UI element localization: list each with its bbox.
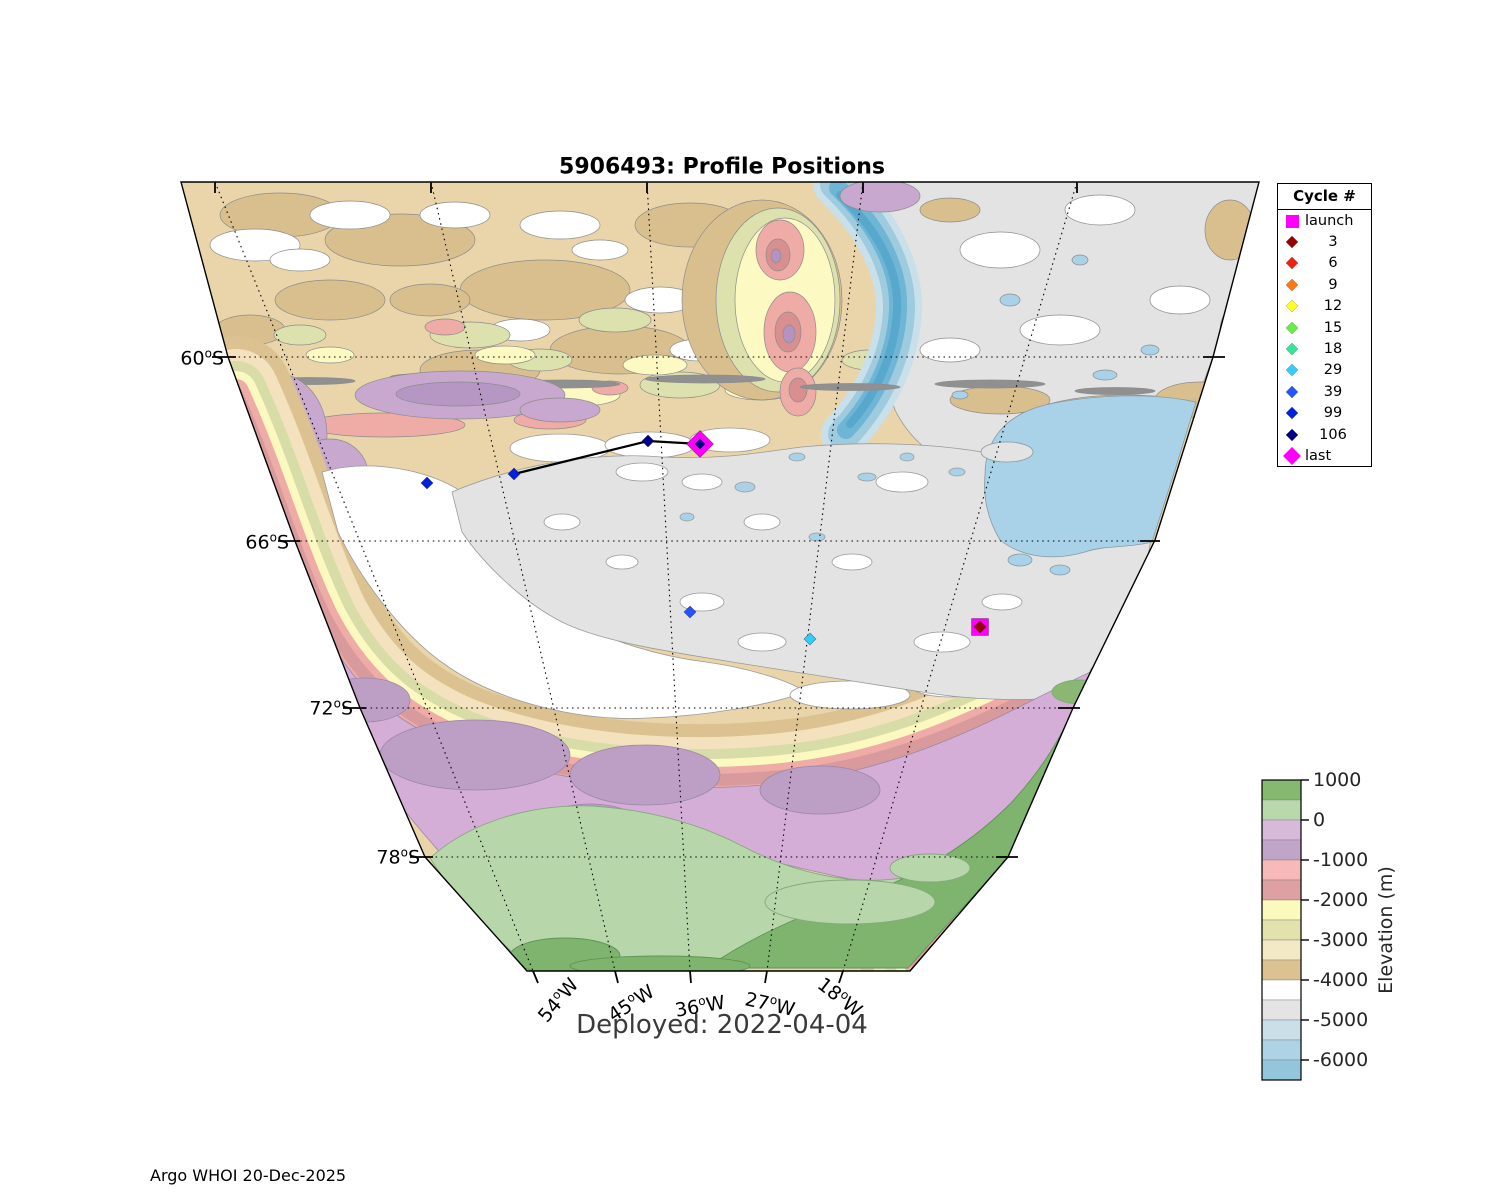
bathymetry-map — [170, 175, 1270, 985]
legend-entry-99: 99 — [1278, 403, 1371, 424]
legend-entry-6: 6 — [1278, 253, 1371, 274]
legend-entry-launch: launch — [1278, 210, 1371, 231]
legend-entry-29: 29 — [1278, 360, 1371, 381]
cycle-106-diamond-icon — [1278, 425, 1305, 445]
figure-canvas: 5906493: Profile Positions Deployed: 202… — [0, 0, 1500, 1200]
colorbar-ticks — [1301, 780, 1309, 1060]
last-diamond-icon — [1278, 446, 1305, 466]
legend-entry-3: 3 — [1278, 231, 1371, 252]
figure-title: 5906493: Profile Positions — [559, 155, 885, 180]
cycle-12-diamond-icon — [1278, 296, 1305, 316]
lat-label-72s: 72oS — [309, 696, 353, 719]
cycle-29-diamond-icon — [1278, 360, 1305, 380]
legend-entry-9: 9 — [1278, 274, 1371, 295]
legend-entry-last: last — [1278, 445, 1371, 466]
legend-entry-18: 18 — [1278, 338, 1371, 359]
cycle-39-diamond-icon — [1278, 382, 1305, 402]
cycle-15-diamond-icon — [1278, 318, 1305, 338]
launch-square-icon — [1278, 211, 1305, 231]
lat-label-66s: 66oS — [245, 530, 289, 553]
cycle-18-diamond-icon — [1278, 339, 1305, 359]
credit-text: Argo WHOI 20-Dec-2025 — [150, 1166, 346, 1185]
lat-label-60s: 60oS — [180, 346, 224, 369]
legend-entry-106: 106 — [1278, 424, 1371, 445]
cycle-legend: Cycle # launch 3 6 9 12 15 18 29 39 99 1… — [1277, 183, 1372, 467]
cycle-99-diamond-icon — [1278, 403, 1305, 423]
colorbar-axis-label: Elevation (m) — [1375, 866, 1397, 994]
cycle-6-diamond-icon — [1278, 253, 1305, 273]
bathy-east-blue-deep — [981, 396, 1196, 575]
legend-title: Cycle # — [1278, 184, 1371, 210]
legend-entry-12: 12 — [1278, 296, 1371, 317]
cycle-3-diamond-icon — [1278, 232, 1305, 252]
lat-label-78s: 78oS — [376, 845, 420, 868]
legend-entry-15: 15 — [1278, 317, 1371, 338]
cycle-9-diamond-icon — [1278, 275, 1305, 295]
elevation-colorbar — [1260, 777, 1320, 1087]
legend-entry-39: 39 — [1278, 381, 1371, 402]
